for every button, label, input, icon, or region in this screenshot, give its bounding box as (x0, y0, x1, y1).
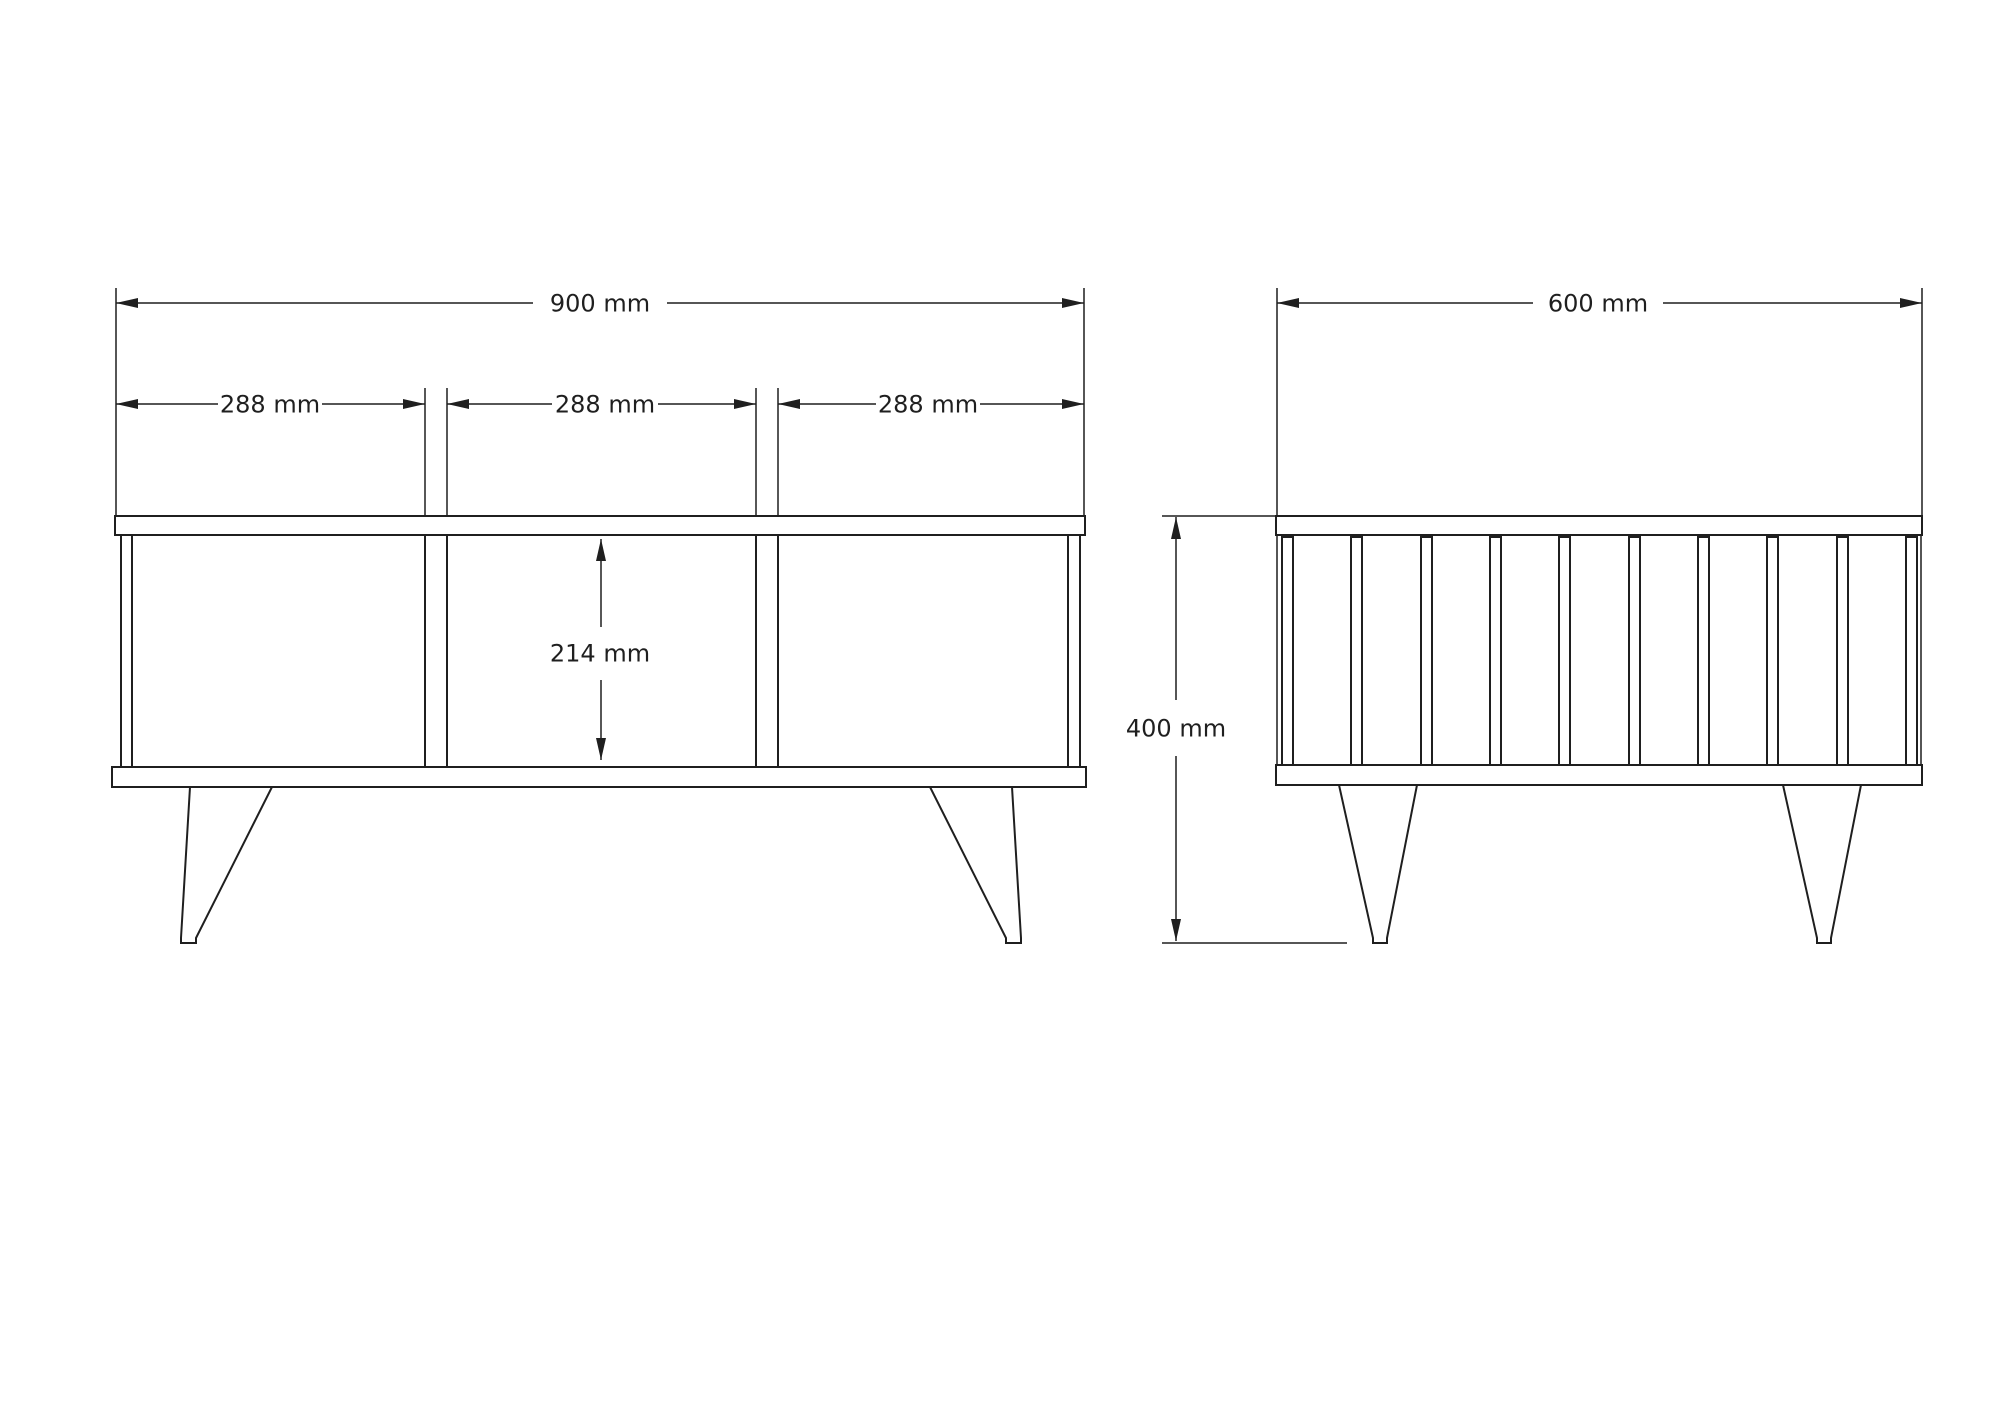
dim-label-288-1: 288 mm (220, 390, 320, 418)
arrow-900-left (116, 298, 138, 308)
front-divider-left (425, 535, 447, 767)
side-leg-right (1783, 785, 1861, 943)
arrow-288c-right (1062, 399, 1084, 409)
arrow-600-right (1900, 298, 1922, 308)
arrow-400-up (1171, 517, 1181, 539)
arrow-288b-left (447, 399, 469, 409)
dim-label-900: 900 mm (550, 289, 650, 317)
dim-label-214: 214 mm (550, 639, 650, 667)
front-top-board (115, 516, 1085, 535)
side-slat (1351, 537, 1362, 765)
arrow-214-up (596, 539, 606, 561)
side-slat (1906, 537, 1917, 765)
front-leg-right (930, 787, 1021, 943)
side-top-board (1276, 516, 1922, 535)
dim-label-600: 600 mm (1548, 289, 1648, 317)
front-leg-left (181, 787, 272, 943)
arrow-288a-left (116, 399, 138, 409)
arrow-288a-right (403, 399, 425, 409)
arrow-400-down (1171, 919, 1181, 941)
side-slat (1559, 537, 1570, 765)
arrow-214-down (596, 738, 606, 760)
side-slat (1282, 537, 1293, 765)
dim-label-288-3: 288 mm (878, 390, 978, 418)
side-bottom-board (1276, 765, 1922, 785)
dimension-layer (116, 288, 1922, 943)
cabinet-geometry-layer (112, 516, 1922, 943)
side-slat (1629, 537, 1640, 765)
arrow-288c-left (778, 399, 800, 409)
dim-label-400: 400 mm (1126, 714, 1226, 742)
side-slat (1767, 537, 1778, 765)
front-divider-right (756, 535, 778, 767)
side-leg-left (1339, 785, 1417, 943)
arrow-900-right (1062, 298, 1084, 308)
front-side-panel-right (1068, 535, 1080, 767)
dim-label-288-2: 288 mm (555, 390, 655, 418)
side-slat (1490, 537, 1501, 765)
side-slat (1837, 537, 1848, 765)
technical-drawing-page: 900 mm288 mm288 mm288 mm214 mm600 mm400 … (0, 0, 2000, 1414)
front-bottom-board (112, 767, 1086, 787)
furniture-dimension-drawing: 900 mm288 mm288 mm288 mm214 mm600 mm400 … (0, 0, 2000, 1414)
front-side-panel-left (121, 535, 132, 767)
side-slat (1421, 537, 1432, 765)
side-slat (1698, 537, 1709, 765)
arrow-600-left (1277, 298, 1299, 308)
arrow-288b-right (734, 399, 756, 409)
